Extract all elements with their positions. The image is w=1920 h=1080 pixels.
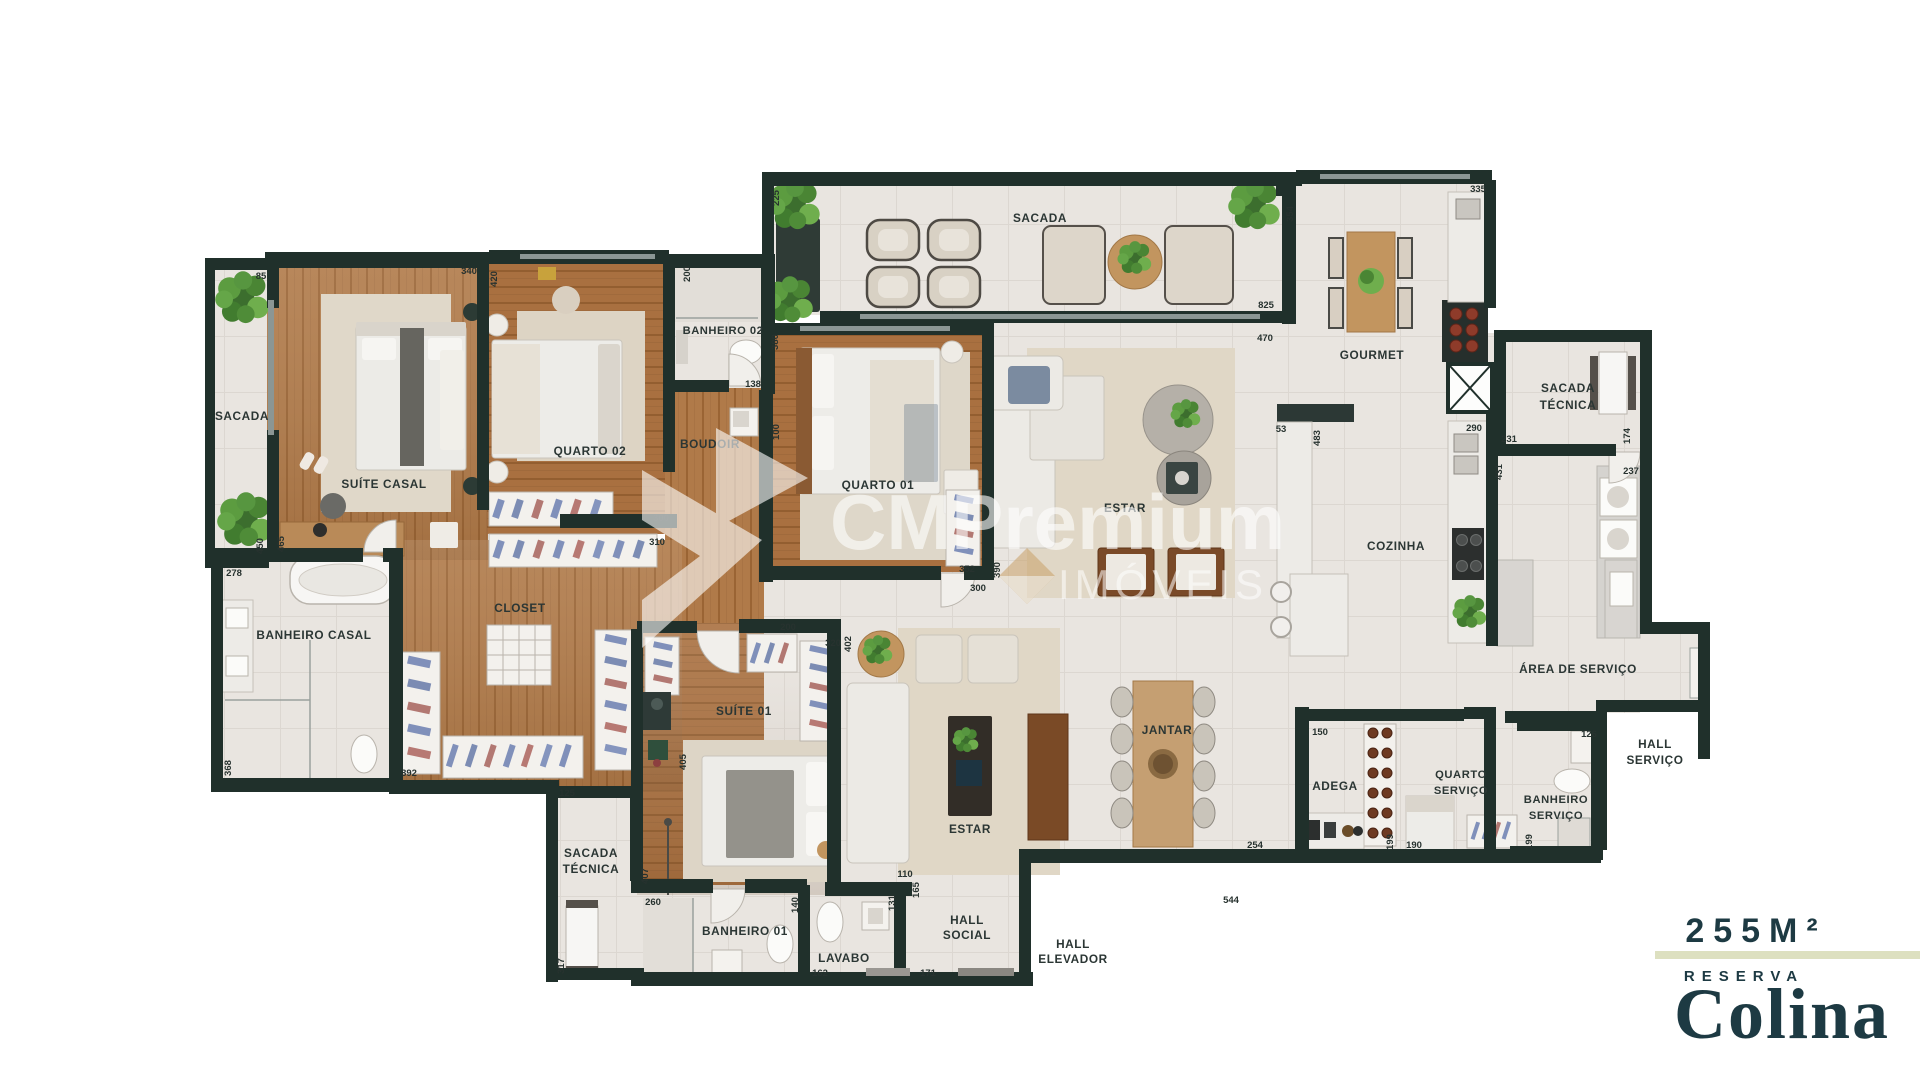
svg-text:320: 320	[825, 638, 841, 649]
svg-text:162: 162	[812, 968, 828, 979]
svg-text:SERVIÇO: SERVIÇO	[1626, 753, 1683, 767]
svg-text:TÉCNICA: TÉCNICA	[563, 862, 620, 876]
svg-text:SACADA: SACADA	[215, 409, 269, 423]
svg-text:237: 237	[1623, 466, 1639, 477]
svg-text:317: 317	[556, 958, 567, 974]
svg-text:465: 465	[276, 535, 287, 552]
svg-text:200: 200	[780, 622, 796, 633]
svg-text:126: 126	[1581, 729, 1597, 740]
svg-text:QUARTO 02: QUARTO 02	[554, 444, 627, 458]
svg-text:QUARTO: QUARTO	[1435, 769, 1487, 781]
svg-text:199: 199	[1524, 834, 1535, 850]
svg-text:290: 290	[1466, 423, 1482, 434]
svg-text:171: 171	[920, 968, 937, 979]
svg-text:HALL: HALL	[950, 913, 984, 927]
svg-text:138: 138	[745, 379, 761, 390]
svg-text:300: 300	[970, 583, 986, 594]
svg-text:200: 200	[682, 266, 693, 282]
svg-text:HALL: HALL	[1056, 937, 1090, 951]
svg-text:140: 140	[790, 897, 801, 913]
svg-text:110: 110	[897, 869, 912, 880]
svg-text:402: 402	[843, 636, 854, 652]
svg-text:BANHEIRO 01: BANHEIRO 01	[702, 924, 788, 938]
svg-text:335: 335	[1470, 184, 1487, 195]
svg-text:225: 225	[771, 189, 782, 206]
svg-text:125: 125	[559, 788, 576, 799]
svg-text:BANHEIRO 02: BANHEIRO 02	[683, 325, 764, 337]
svg-text:174: 174	[1622, 427, 1633, 444]
svg-text:407: 407	[640, 868, 651, 884]
svg-text:392: 392	[401, 768, 417, 779]
svg-text:IMÓVEIS: IMÓVEIS	[1058, 561, 1268, 608]
svg-text:ADEGA: ADEGA	[1312, 779, 1358, 793]
svg-text:231: 231	[1501, 434, 1518, 445]
svg-text:260: 260	[645, 897, 661, 908]
svg-text:BANHEIRO CASAL: BANHEIRO CASAL	[256, 628, 371, 642]
svg-text:431: 431	[1494, 463, 1505, 480]
svg-text:SOCIAL: SOCIAL	[943, 928, 991, 942]
svg-text:Colina: Colina	[1674, 974, 1890, 1054]
svg-text:BANHEIRO: BANHEIRO	[1524, 794, 1588, 806]
svg-text:483: 483	[1312, 430, 1323, 446]
svg-text:LAVABO: LAVABO	[818, 951, 870, 965]
svg-text:354: 354	[1285, 205, 1296, 222]
svg-text:165: 165	[911, 881, 922, 898]
svg-text:JANTAR: JANTAR	[1142, 723, 1193, 737]
svg-text:ESTAR: ESTAR	[949, 822, 991, 836]
svg-text:190: 190	[1406, 840, 1422, 851]
svg-text:SERVIÇO: SERVIÇO	[1434, 785, 1488, 797]
svg-text:SUÍTE CASAL: SUÍTE CASAL	[341, 477, 426, 491]
svg-text:368: 368	[223, 760, 234, 776]
svg-text:254: 254	[1247, 840, 1264, 851]
svg-text:420: 420	[489, 271, 500, 287]
svg-text:SACADA: SACADA	[564, 846, 618, 860]
svg-text:255M²: 255M²	[1685, 912, 1826, 950]
svg-text:SERVIÇO: SERVIÇO	[1529, 810, 1583, 822]
svg-text:131: 131	[887, 894, 898, 911]
svg-text:199: 199	[1385, 834, 1396, 850]
svg-text:450: 450	[255, 538, 266, 554]
svg-text:340: 340	[461, 266, 477, 277]
svg-text:HALL: HALL	[1638, 737, 1672, 751]
svg-text:544: 544	[1223, 895, 1240, 906]
svg-text:470: 470	[1257, 333, 1273, 344]
svg-text:SACADA: SACADA	[1013, 211, 1067, 225]
svg-text:380: 380	[770, 334, 781, 350]
svg-text:CLOSET: CLOSET	[494, 601, 546, 615]
svg-text:ÁREA DE SERVIÇO: ÁREA DE SERVIÇO	[1519, 662, 1637, 676]
svg-text:150: 150	[1312, 727, 1328, 738]
svg-text:GOURMET: GOURMET	[1340, 348, 1405, 362]
svg-text:53: 53	[1276, 424, 1287, 435]
svg-text:278: 278	[226, 568, 242, 579]
svg-text:405: 405	[678, 753, 689, 770]
svg-text:CMPremium: CMPremium	[830, 478, 1285, 566]
svg-text:SACADA: SACADA	[1541, 381, 1595, 395]
svg-text:TÉCNICA: TÉCNICA	[1540, 398, 1597, 412]
svg-text:310: 310	[649, 537, 665, 548]
svg-text:85: 85	[256, 271, 267, 282]
svg-text:COZINHA: COZINHA	[1367, 539, 1425, 553]
svg-text:825: 825	[1258, 300, 1275, 311]
svg-text:SUÍTE 01: SUÍTE 01	[716, 704, 772, 718]
svg-text:100: 100	[771, 424, 782, 440]
svg-text:ELEVADOR: ELEVADOR	[1038, 952, 1107, 966]
